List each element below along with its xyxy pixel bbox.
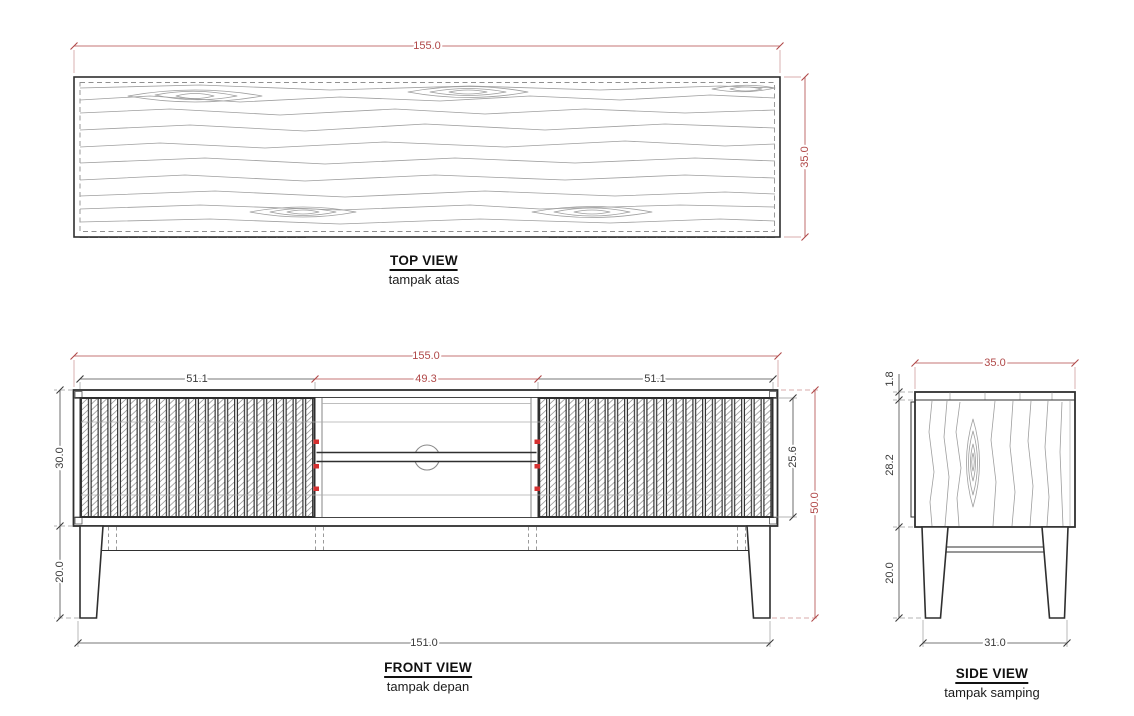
top-depth-dim: 35.0 (799, 146, 811, 167)
front-view: 155.0 51.1 49.3 51.1 30.0 20.0 25.6 50.0… (54, 350, 821, 649)
side-depth-dim: 35.0 (984, 357, 1005, 369)
left-door (81, 398, 315, 517)
front-overall-width-dim: 155.0 (412, 350, 440, 362)
side-back-leg (1042, 527, 1068, 618)
top-flute-scallops-right (548, 237, 776, 246)
front-overall-height-dim: 50.0 (809, 492, 821, 513)
side-view-title: SIDE VIEW (956, 667, 1028, 684)
side-leg-height-dim: 20.0 (884, 562, 896, 583)
front-leg-span-dim: 151.0 (410, 637, 438, 649)
side-front-leg (922, 527, 948, 618)
technical-drawing-sheet: 155.0 35.0 (0, 0, 1134, 716)
top-width-dim: 155.0 (413, 40, 441, 52)
top-view-title: TOP VIEW (390, 254, 458, 271)
front-body-height-dim: 30.0 (54, 447, 66, 468)
front-middle-dim: 49.3 (415, 373, 436, 385)
front-left-leg (80, 526, 103, 618)
top-view-subtitle: tampak atas (389, 272, 460, 288)
front-view-label: FRONT VIEW tampak depan (384, 659, 472, 694)
side-body-height-dim: 28.2 (884, 454, 896, 475)
side-view-subtitle: tampak samping (944, 685, 1039, 701)
side-view-label: SIDE VIEW tampak samping (944, 665, 1039, 700)
drawing-canvas: 155.0 35.0 (0, 0, 1134, 716)
side-leg-span-dim: 31.0 (984, 637, 1005, 649)
front-door-height-dim: 25.6 (787, 446, 799, 467)
side-view: 35.0 1.8 28.2 20.0 31.0 (884, 357, 1075, 649)
side-top-thickness-dim: 1.8 (884, 371, 896, 386)
front-leg-height-dim: 20.0 (54, 561, 66, 582)
front-view-title: FRONT VIEW (384, 661, 472, 678)
front-right-door-dim: 51.1 (644, 373, 665, 385)
right-door (539, 398, 773, 517)
front-left-door-dim: 51.1 (186, 373, 207, 385)
front-right-leg (747, 526, 770, 618)
top-flute-scallops-left (79, 237, 306, 246)
front-view-subtitle: tampak depan (384, 679, 472, 695)
top-view-label: TOP VIEW tampak atas (389, 252, 460, 287)
top-view: 155.0 35.0 (74, 40, 811, 246)
